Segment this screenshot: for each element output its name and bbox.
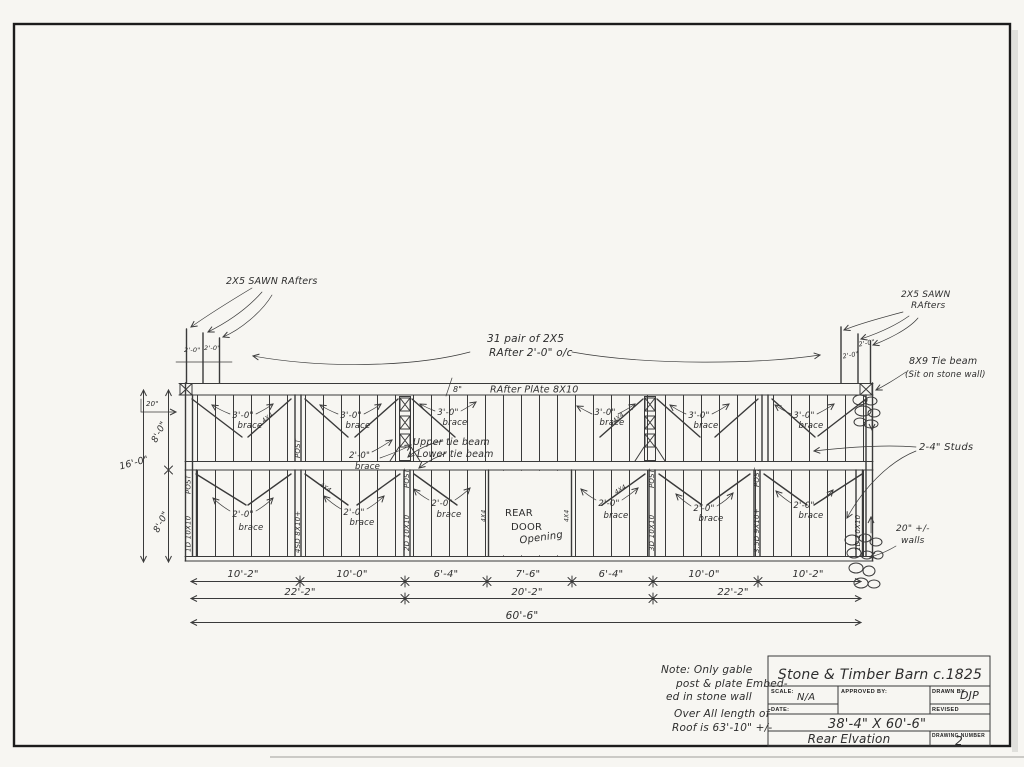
post-size-3: 2D 10X10 <box>403 514 411 551</box>
note-line-1: Note: Only gable <box>661 664 752 676</box>
approved-by-label: APPROVED BY: <box>841 689 887 695</box>
studs-label: 2-4" Studs <box>919 442 973 453</box>
note-line-5: Roof is 63'-10" +/- <box>672 722 772 734</box>
brace-2ft-word: brace <box>349 518 374 528</box>
plate-height-label: 8" <box>453 385 462 394</box>
stud-wall-upper <box>185 395 873 461</box>
brace-3ft-word: brace <box>693 421 718 431</box>
door-label-1: REAR <box>505 508 533 519</box>
rafters-right-label-1: 2X5 SAWN <box>901 290 950 300</box>
dim-section-1: 22'-2" <box>284 587 315 598</box>
overall-dimensions: 38'-4" X 60'-6" <box>828 717 926 732</box>
post-word: POST <box>403 468 411 488</box>
post-size-6: 1D 10X10 <box>854 514 862 551</box>
rafter-plate-label: RAfter PlAte 8X10 <box>490 385 578 396</box>
post-word: POST <box>753 467 761 487</box>
drawing-number-value: 2 <box>955 734 963 748</box>
upper-tie-beam-label: Upper tie beam <box>413 437 490 448</box>
door-jamb-size: 4X4 <box>481 510 488 522</box>
dim-bay-3: 6'-4" <box>434 569 459 580</box>
date-label: DATE: <box>771 707 789 713</box>
gable-brace-dim: 2'-0" <box>349 451 370 461</box>
gable-brace-word: brace <box>355 462 380 472</box>
dim-section-2: 20'-2" <box>511 587 542 598</box>
note-line-3: ed in stone wall <box>666 691 752 703</box>
barn-elevation-sheet: 2X5 SAWN RAfters 2'-0" 2'-0" 31 pair of … <box>0 0 1024 767</box>
rafters-right-label-2: RAfters <box>911 301 946 311</box>
brace-3ft-word: brace <box>345 421 370 431</box>
post-word: POST <box>648 468 656 488</box>
rafter-pair-note-line1: 31 pair of 2X5 <box>487 333 564 345</box>
post-size-4: 3D 10X10 <box>648 514 656 551</box>
rafter-spacing-left-1: 2'-0" <box>184 346 200 354</box>
post-word: POST <box>294 438 302 458</box>
scale-label: SCALE: <box>771 689 794 695</box>
dim-section-3: 22'-2" <box>717 587 748 598</box>
brace-3ft-dim: 3'-0" <box>437 408 458 418</box>
dim-bay-6: 10'-0" <box>688 569 719 580</box>
brace-3ft-dim: 3'-0" <box>688 411 709 421</box>
dim-total-length: 60'-6" <box>506 610 539 622</box>
walls-label-1: 20" +/- <box>896 524 930 534</box>
brace-3ft-word: brace <box>798 421 823 431</box>
revised-label: REVISED <box>932 707 959 713</box>
rafters-left-label: 2X5 SAWN RAfters <box>226 276 318 287</box>
rafter-pair-note-line2: RAfter 2'-0" o/c <box>489 347 573 359</box>
post-size-5: 3.5D 9X10+ <box>753 508 761 553</box>
brace-2ft-dim: 2'-0" <box>431 499 452 509</box>
brace-2ft-dim: 2'-0" <box>598 499 619 509</box>
wall-thickness-label: 20" <box>146 400 159 408</box>
tie-beam-label-2: (Sit on stone wall) <box>905 370 986 380</box>
post-size-1: 1D 10X10 <box>185 515 193 552</box>
view-name: Rear Elvation <box>808 732 891 746</box>
walls-label-2: walls <box>901 536 925 546</box>
brace-2ft-word: brace <box>698 514 723 524</box>
drawn-by-value: DJP <box>960 689 979 702</box>
rafter-spacing-left-2: 2'-0" <box>204 344 220 352</box>
dim-bay-2: 10'-0" <box>336 569 367 580</box>
brace-2ft-word: brace <box>603 511 628 521</box>
dim-bay-7: 10'-2" <box>792 569 823 580</box>
dim-bay-4: 7'-6" <box>516 569 541 580</box>
post-word: POST <box>185 474 193 494</box>
brace-2ft-word: brace <box>436 510 461 520</box>
brace-3ft-dim: 3'-0" <box>793 411 814 421</box>
brace-2ft-word: brace <box>798 511 823 521</box>
brace-2ft-dim: 2'-0" <box>793 501 814 511</box>
lower-tie-beam-label: Lower tie beam <box>417 449 494 460</box>
dim-bay-5: 6'-4" <box>599 569 624 580</box>
door-jamb-size: 4X4 <box>564 510 571 522</box>
scan-edge-shadow <box>1012 30 1018 752</box>
brace-2ft-dim: 2'-0" <box>343 508 364 518</box>
brace-3ft-dim: 3'-0" <box>340 411 361 421</box>
brace-2ft-dim: 2'-0" <box>693 504 714 514</box>
dim-bay-1: 10'-2" <box>227 569 258 580</box>
drawing-title: Stone & Timber Barn c.1825 <box>778 667 982 683</box>
note-line-4: Over All length of <box>674 708 772 720</box>
tie-beam-label-1: 8X9 Tie beam <box>909 356 977 367</box>
brace-3ft-dim: 3'-0" <box>232 411 253 421</box>
brace-2ft-word: brace <box>238 523 263 533</box>
scale-value: N/A <box>797 692 815 703</box>
brace-3ft-dim: 3'-0" <box>594 408 615 418</box>
post-size-2: 4SD 8X10+ <box>294 511 302 553</box>
door-label-2: DOOR <box>511 522 542 533</box>
brace-3ft-word: brace <box>237 421 262 431</box>
brace-2ft-dim: 2'-0" <box>232 510 253 520</box>
brace-3ft-word: brace <box>442 418 467 428</box>
